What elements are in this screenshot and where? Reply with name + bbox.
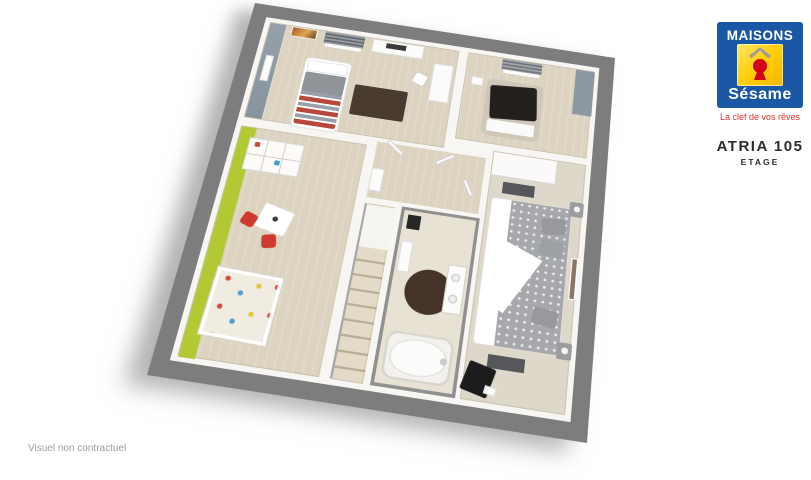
logo-text-maisons: MAISONS xyxy=(727,29,794,43)
kidsroom-red-chair-2 xyxy=(261,234,276,248)
hallway-open-door-2 xyxy=(435,154,456,165)
keyhole-badge xyxy=(737,44,783,86)
disclaimer-text: Visuel non contractuel xyxy=(28,443,126,454)
room-landing-hallway xyxy=(366,141,486,214)
kidsroom-cube-shelf xyxy=(242,137,305,177)
bedroom1-striped-duvet xyxy=(293,90,342,130)
hallway-cabinet xyxy=(368,167,385,192)
bedroom2-dark-blanket xyxy=(489,85,537,122)
bedroom2-bed xyxy=(480,78,544,143)
bedroom2-accent-stripe xyxy=(572,70,595,117)
bathroom-cabinet xyxy=(396,240,414,273)
bedroom1-desk xyxy=(427,63,454,104)
hallway-open-door-1 xyxy=(387,140,404,156)
brand-tagline: La clef de vos rêves xyxy=(690,113,811,123)
master-wardrobe xyxy=(491,152,557,186)
page: MAISONS Sésame La clef de vos rêves ATRI… xyxy=(0,0,811,480)
bedroom2-bed-foot xyxy=(486,119,535,138)
staircase-landing xyxy=(359,204,395,250)
logo-text-sesame: Sésame xyxy=(728,87,792,103)
master-pillow-1 xyxy=(542,218,566,235)
keyhole-icon xyxy=(752,59,768,82)
room-bedroom-2 xyxy=(455,52,594,158)
kidsroom-toy-blue xyxy=(274,160,281,166)
master-bed xyxy=(473,198,571,356)
bathroom-vanity xyxy=(441,264,467,316)
plan-subtitle: ETAGE xyxy=(690,157,811,167)
maisons-sesame-logo: MAISONS Sésame xyxy=(717,22,803,108)
floor-plan-interior xyxy=(170,17,599,422)
plan-title: ATRIA 105 xyxy=(690,138,811,155)
roof-icon xyxy=(749,47,771,58)
master-wall-frame xyxy=(568,258,578,301)
bedroom1-bed xyxy=(290,57,351,132)
floor-plan-3d xyxy=(147,3,615,443)
bathroom-dark-unit xyxy=(406,214,421,230)
room-bedroom-1 xyxy=(244,22,460,148)
bedroom2-nightstand xyxy=(471,76,484,86)
bedroom1-desk-chair xyxy=(410,71,429,88)
brand-block: MAISONS Sésame La clef de vos rêves ATRI… xyxy=(690,22,811,167)
bedroom1-wall-art xyxy=(290,26,318,40)
hallway-open-door-3 xyxy=(462,179,473,197)
master-rug-top xyxy=(502,182,535,198)
bedroom1-rug xyxy=(349,84,408,122)
